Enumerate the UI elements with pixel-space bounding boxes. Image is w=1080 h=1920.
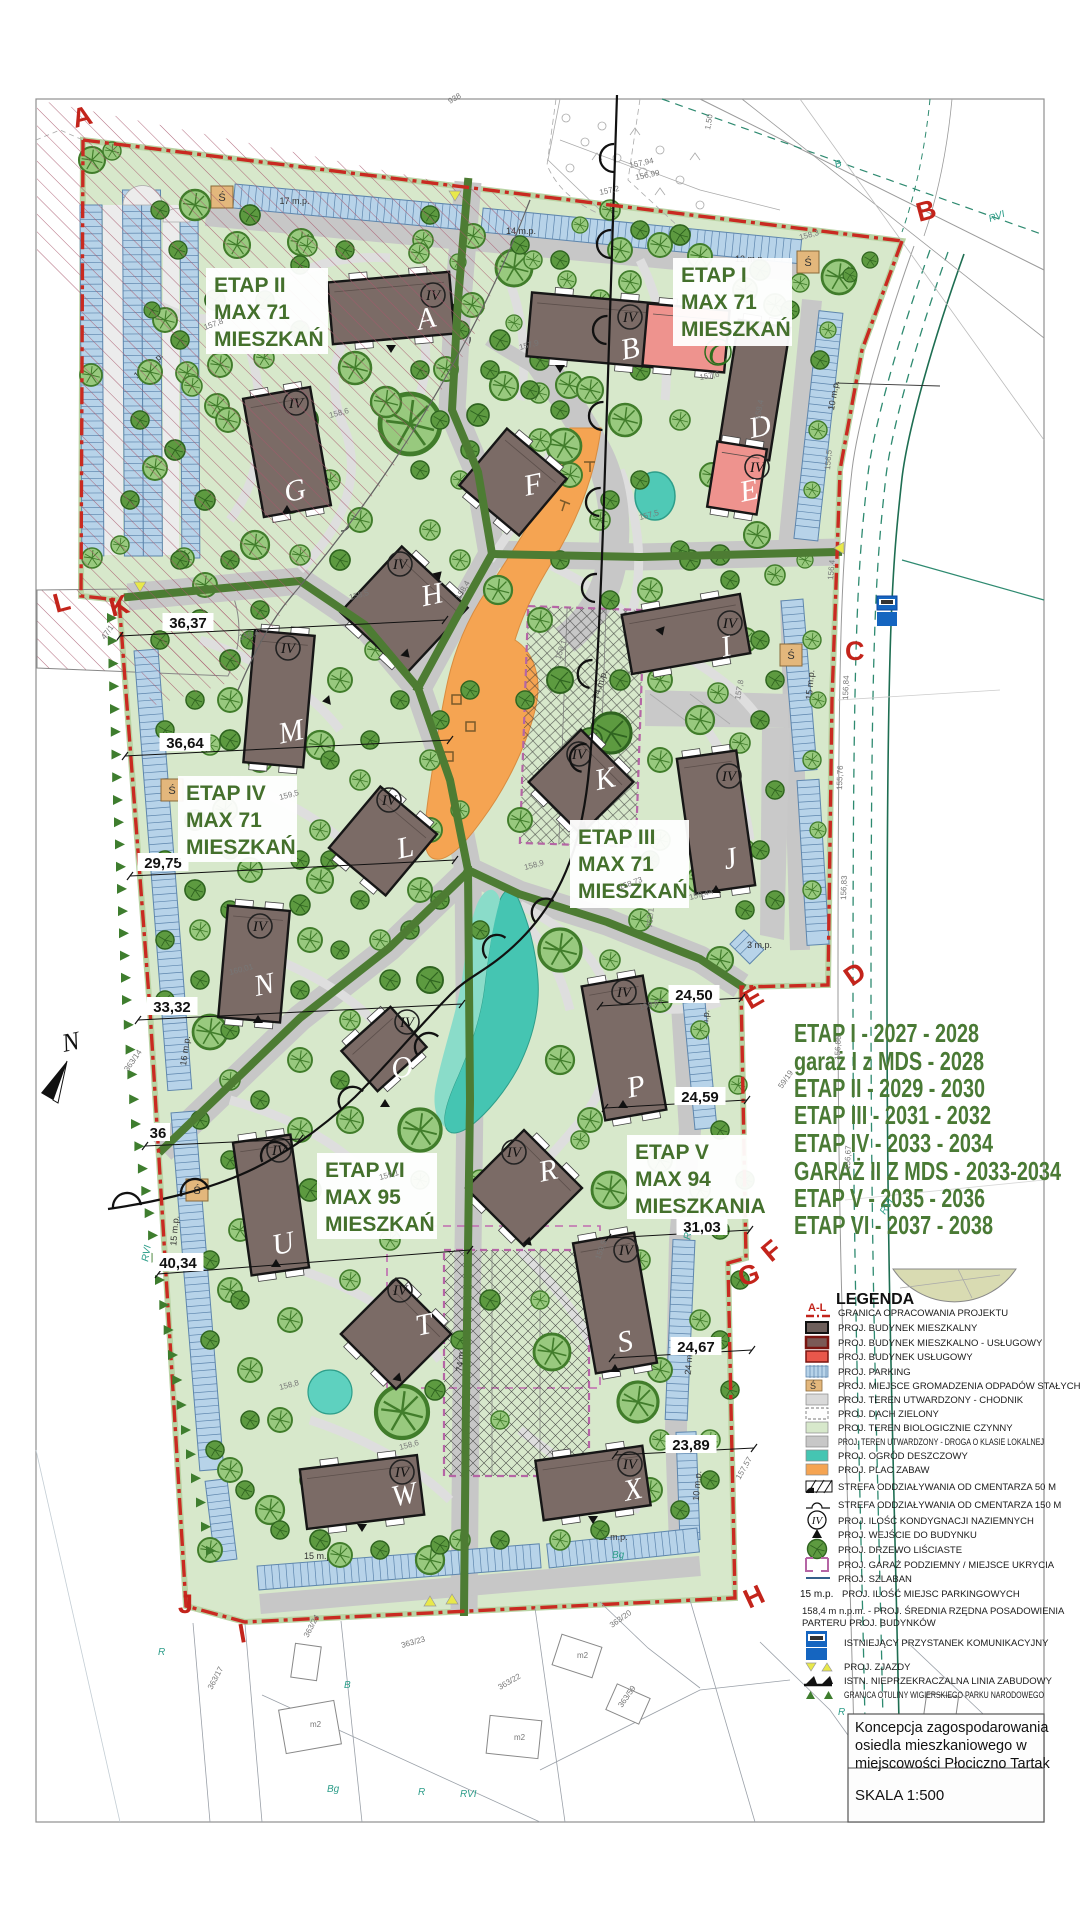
- svg-text:Bg: Bg: [612, 1550, 625, 1561]
- svg-text:garaż I z MDS - 2028: garaż I z MDS - 2028: [794, 1046, 984, 1076]
- svg-text:STREFA ODDZIAŁYWANIA OD CMENTA: STREFA ODDZIAŁYWANIA OD CMENTARZA 50 M: [838, 1482, 1056, 1493]
- svg-text:PROJ. ZJAZDY: PROJ. ZJAZDY: [844, 1662, 911, 1673]
- svg-text:Koncepcja zagospodarowania: Koncepcja zagospodarowania: [855, 1720, 1049, 1736]
- svg-text:PROJ. PLAC ZABAW: PROJ. PLAC ZABAW: [838, 1465, 930, 1476]
- svg-text:IV: IV: [252, 919, 269, 935]
- svg-text:156,83: 156,83: [839, 875, 849, 900]
- svg-text:762/1: 762/1: [645, 907, 656, 928]
- svg-text:m2: m2: [310, 1720, 322, 1729]
- svg-text:ISTNIEJĄCY PRZYSTANEK KOMUNIKA: ISTNIEJĄCY PRZYSTANEK KOMUNIKACYJNY: [844, 1638, 1049, 1649]
- svg-text:156,86: 156,86: [833, 1035, 843, 1060]
- svg-text:24,50: 24,50: [675, 987, 713, 1004]
- svg-text:ETAP IV: ETAP IV: [186, 782, 266, 805]
- svg-text:MIESZKAŃ: MIESZKAŃ: [681, 318, 791, 341]
- svg-text:MAX 71: MAX 71: [186, 809, 262, 832]
- svg-text:36,64: 36,64: [166, 735, 204, 752]
- svg-text:156,67: 156,67: [843, 1145, 853, 1170]
- svg-text:MAX 71: MAX 71: [681, 291, 757, 314]
- svg-text:IV: IV: [392, 557, 409, 573]
- svg-text:LEGENDA: LEGENDA: [836, 1291, 915, 1308]
- svg-text:ETAP II: ETAP II: [214, 274, 286, 297]
- svg-text:MAX 95: MAX 95: [325, 1186, 401, 1209]
- svg-text:IV: IV: [622, 310, 639, 326]
- svg-text:PROJ. TEREN UTWARDZONY - DROGA: PROJ. TEREN UTWARDZONY - DROGA O KLASIE …: [838, 1437, 1044, 1448]
- svg-text:156,5: 156,5: [823, 449, 834, 470]
- svg-text:24,59: 24,59: [681, 1089, 719, 1106]
- svg-text:C: C: [845, 636, 865, 666]
- svg-text:PROJ. TEREN UTWARDZONY - CHODN: PROJ. TEREN UTWARDZONY - CHODNIK: [838, 1395, 1024, 1406]
- svg-text:osiedla mieszkaniowego w: osiedla mieszkaniowego w: [855, 1738, 1027, 1754]
- svg-text:ETAP VI - 2037 - 2038: ETAP VI - 2037 - 2038: [794, 1210, 993, 1240]
- svg-text:B: B: [344, 1680, 351, 1691]
- svg-text:MIESZKAŃ: MIESZKAŃ: [325, 1213, 435, 1236]
- svg-text:STREFA ODDZIAŁYWANIA OD CMENTA: STREFA ODDZIAŁYWANIA OD CMENTARZA 150 M: [838, 1500, 1061, 1511]
- svg-text:m2: m2: [577, 1651, 589, 1660]
- svg-text:PROJ. DACH ZIELONY: PROJ. DACH ZIELONY: [838, 1409, 939, 1420]
- svg-text:155,76: 155,76: [835, 765, 845, 790]
- svg-text:Bg: Bg: [327, 1784, 340, 1795]
- svg-text:ETAP IV - 2033 - 2034: ETAP IV - 2033 - 2034: [794, 1128, 993, 1158]
- svg-text:MIESZKAŃ: MIESZKAŃ: [186, 836, 296, 859]
- svg-text:ETAP II - 2029 - 2030: ETAP II - 2029 - 2030: [794, 1073, 985, 1103]
- svg-text:PROJ. BUDYNEK MIESZKALNO - USŁ: PROJ. BUDYNEK MIESZKALNO - USŁUGOWY: [838, 1338, 1043, 1349]
- svg-text:3 m.p.: 3 m.p.: [747, 940, 772, 950]
- svg-text:ETAP I: ETAP I: [681, 264, 747, 287]
- svg-text:IV: IV: [618, 1243, 635, 1259]
- svg-text:PROJ. BUDYNEK MIESZKALNY: PROJ. BUDYNEK MIESZKALNY: [838, 1323, 978, 1334]
- svg-text:ETAP I - 2027 - 2028: ETAP I - 2027 - 2028: [794, 1018, 979, 1048]
- svg-text:Ś: Ś: [787, 649, 794, 662]
- svg-text:MIESZKAŃ: MIESZKAŃ: [214, 328, 324, 351]
- svg-text:SKALA 1:500: SKALA 1:500: [855, 1787, 944, 1804]
- svg-text:ISTN. NIEPRZEKRACZALNA LINIA Z: ISTN. NIEPRZEKRACZALNA LINIA ZABUDOWY: [844, 1676, 1053, 1687]
- svg-text:36,37: 36,37: [169, 615, 207, 632]
- svg-text:PARTERU PROJ. BUDYNKÓW: PARTERU PROJ. BUDYNKÓW: [802, 1618, 936, 1629]
- svg-text:GRANICA OTULINY WIGIERSKIEGO P: GRANICA OTULINY WIGIERSKIEGO PARKU NAROD…: [844, 1690, 1044, 1701]
- svg-text:IV: IV: [811, 1515, 824, 1527]
- svg-text:A-L: A-L: [808, 1302, 827, 1314]
- svg-text:R: R: [418, 1787, 425, 1798]
- svg-text:Ś: Ś: [168, 784, 175, 797]
- svg-text:ETAP V: ETAP V: [635, 1141, 709, 1164]
- svg-text:PROJ. GARAŻ PODZIEMNY / MIEJSC: PROJ. GARAŻ PODZIEMNY / MIEJSCE UKRYCIA: [838, 1560, 1055, 1571]
- svg-text:PROJ. WEJŚCIE DO BUDYNKU: PROJ. WEJŚCIE DO BUDYNKU: [838, 1529, 977, 1541]
- svg-text:PROJ. BUDYNEK USŁUGOWY: PROJ. BUDYNEK USŁUGOWY: [838, 1352, 973, 1363]
- svg-text:Ś: Ś: [810, 1380, 816, 1391]
- svg-text:IV: IV: [399, 1015, 416, 1031]
- svg-text:36: 36: [150, 1125, 167, 1142]
- svg-text:PROJ. TEREN BIOLOGICZNIE CZYNN: PROJ. TEREN BIOLOGICZNIE CZYNNY: [838, 1423, 1013, 1434]
- svg-text:PROJ. SZLABAN: PROJ. SZLABAN: [838, 1574, 912, 1585]
- svg-text:RVI: RVI: [460, 1789, 477, 1800]
- svg-text:24,67: 24,67: [677, 1339, 715, 1356]
- svg-text:IV: IV: [721, 769, 738, 785]
- svg-text:IV: IV: [381, 793, 398, 809]
- svg-text:40,34: 40,34: [159, 1255, 197, 1272]
- svg-text:PROJ. ILOŚĆ MIEJSC PARKINGOWYC: PROJ. ILOŚĆ MIEJSC PARKINGOWYCH: [842, 1588, 1020, 1600]
- svg-text:ETAP III - 2031 - 2032: ETAP III - 2031 - 2032: [794, 1100, 991, 1130]
- svg-text:R: R: [158, 1647, 165, 1658]
- svg-text:IV: IV: [392, 1283, 409, 1299]
- svg-text:156,4: 156,4: [826, 559, 837, 580]
- svg-text:156,84: 156,84: [841, 675, 851, 700]
- svg-text:29,75: 29,75: [144, 855, 182, 872]
- svg-text:IV: IV: [622, 1457, 639, 1473]
- svg-text:GARAŻ II Z MDS - 2033-2034: GARAŻ II Z MDS - 2033-2034: [794, 1156, 1061, 1186]
- svg-text:IV: IV: [280, 641, 297, 657]
- svg-text:IV: IV: [506, 1145, 523, 1161]
- svg-text:miejscowości Płociczno Tartak: miejscowości Płociczno Tartak: [855, 1756, 1050, 1772]
- svg-text:MIESZKANIA: MIESZKANIA: [635, 1195, 766, 1218]
- svg-text:33,32: 33,32: [153, 999, 191, 1016]
- svg-text:15 m.p.: 15 m.p.: [800, 1589, 833, 1600]
- svg-text:PROJ. PARKING: PROJ. PARKING: [838, 1367, 911, 1378]
- svg-text:Ś: Ś: [804, 256, 811, 269]
- svg-text:ETAP III: ETAP III: [578, 826, 655, 849]
- svg-text:PROJ. DRZEWO LIŚCIASTE: PROJ. DRZEWO LIŚCIASTE: [838, 1544, 962, 1556]
- svg-text:PROJ. ILOŚĆ KONDYGNACJI NAZIEM: PROJ. ILOŚĆ KONDYGNACJI NAZIEMNYCH: [838, 1515, 1034, 1527]
- svg-text:PROJ. MIEJSCE GROMADZENIA ODPA: PROJ. MIEJSCE GROMADZENIA ODPADÓW STAŁYC…: [838, 1381, 1080, 1392]
- svg-text:PROJ. OGRÓD DESZCZOWY: PROJ. OGRÓD DESZCZOWY: [838, 1451, 969, 1462]
- svg-text:J: J: [178, 1589, 193, 1619]
- svg-text:R: R: [838, 1707, 845, 1718]
- svg-text:m2: m2: [514, 1733, 526, 1742]
- svg-text:MAX 71: MAX 71: [578, 853, 654, 876]
- svg-text:MAX 71: MAX 71: [214, 301, 290, 324]
- svg-text:MAX 94: MAX 94: [635, 1168, 711, 1191]
- svg-text:IV: IV: [616, 985, 633, 1001]
- svg-text:158,4 m n.p.m. - PROJ. ŚREDNIA: 158,4 m n.p.m. - PROJ. ŚREDNIA RZĘDNA PO…: [802, 1605, 1065, 1617]
- svg-text:GRANICA OPRACOWANIA PROJEKTU: GRANICA OPRACOWANIA PROJEKTU: [838, 1308, 1008, 1319]
- svg-text:23,89: 23,89: [672, 1437, 710, 1454]
